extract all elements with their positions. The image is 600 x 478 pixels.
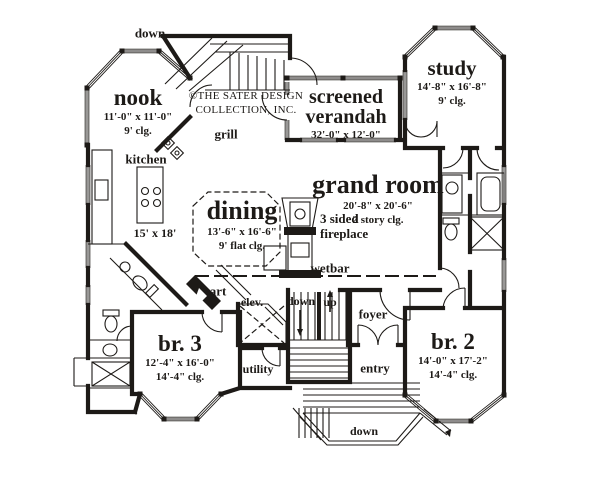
label-kitchen: kitchen (125, 153, 166, 166)
floor-plan-drawing (0, 0, 600, 478)
label-down-main-stairs: down (287, 295, 315, 307)
label-fireplace: 3 sided fireplace (320, 212, 368, 242)
room-label-study: study 14'-8" x 16'-8" 9' clg. (417, 58, 487, 107)
room-label-verandah: screened verandah 32'-0" x 12'-0" (305, 87, 386, 141)
label-down-upper-stairs: down (135, 27, 165, 40)
left-bath (74, 310, 132, 388)
label-entry: entry (360, 362, 390, 375)
floor-plan-page: down nook 11'-0" x 11'-0" 9' clg. ©THE S… (0, 0, 600, 478)
label-utility: utility (243, 363, 274, 375)
room-label-nook: nook 11'-0" x 11'-0" 9' clg. (104, 86, 172, 137)
label-up-main-stairs: up (323, 296, 336, 308)
elevator (238, 304, 286, 345)
label-art: art (210, 285, 227, 298)
label-grill: grill (214, 128, 237, 141)
powder-room (88, 244, 162, 310)
room-label-br3: br. 3 12'-4" x 16'-0" 14'-4" clg. (145, 332, 215, 383)
label-wetbar: wetbar (311, 262, 350, 275)
toilet-icon (105, 316, 117, 332)
sink-icon (120, 262, 130, 272)
upper-stairs (165, 38, 317, 91)
label-foyer: foyer (359, 308, 388, 321)
toilet-icon (130, 273, 150, 293)
sink-icon (103, 344, 117, 356)
kitchen-island (137, 167, 163, 223)
label-elevator: elev. (241, 296, 263, 308)
room-label-dining: dining 13'-6" x 16'-6" 9' flat clg. (207, 198, 278, 252)
toilet-icon (445, 224, 457, 240)
label-down-entry-steps: down (350, 425, 378, 437)
down-arrow-icon (297, 329, 303, 336)
copyright: ©THE SATER DESIGN COLLECTION, INC. (189, 89, 303, 118)
label-kitchen-dims: 15' x 18' (134, 227, 177, 239)
room-label-br2: br. 2 14'-0" x 17'-2" 14'-4" clg. (418, 330, 488, 381)
sink-icon (446, 182, 458, 194)
